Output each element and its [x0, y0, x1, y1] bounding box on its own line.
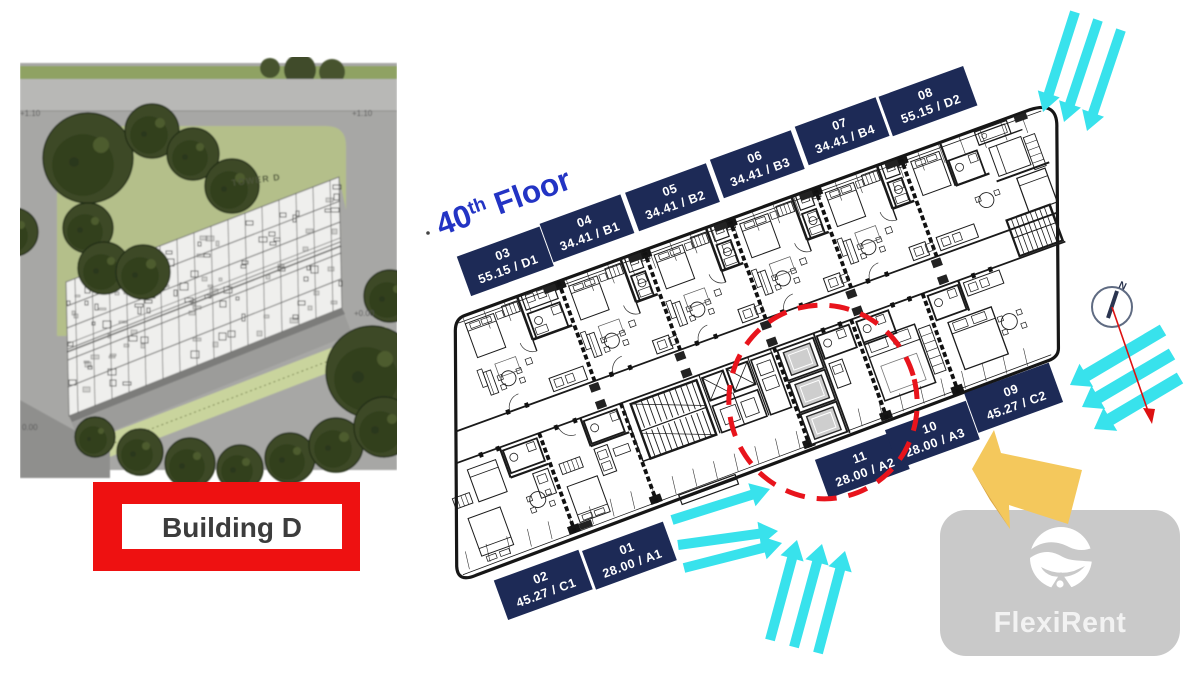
svg-text:+1.10: +1.10	[352, 109, 373, 118]
svg-text:+1.10: +1.10	[20, 109, 41, 118]
svg-text:N: N	[1117, 280, 1128, 293]
svg-text:FlexiRent: FlexiRent	[994, 607, 1127, 639]
svg-text:+0.00: +0.00	[354, 309, 375, 318]
svg-text:Building D: Building D	[162, 512, 302, 543]
svg-text:0.00: 0.00	[22, 423, 38, 432]
